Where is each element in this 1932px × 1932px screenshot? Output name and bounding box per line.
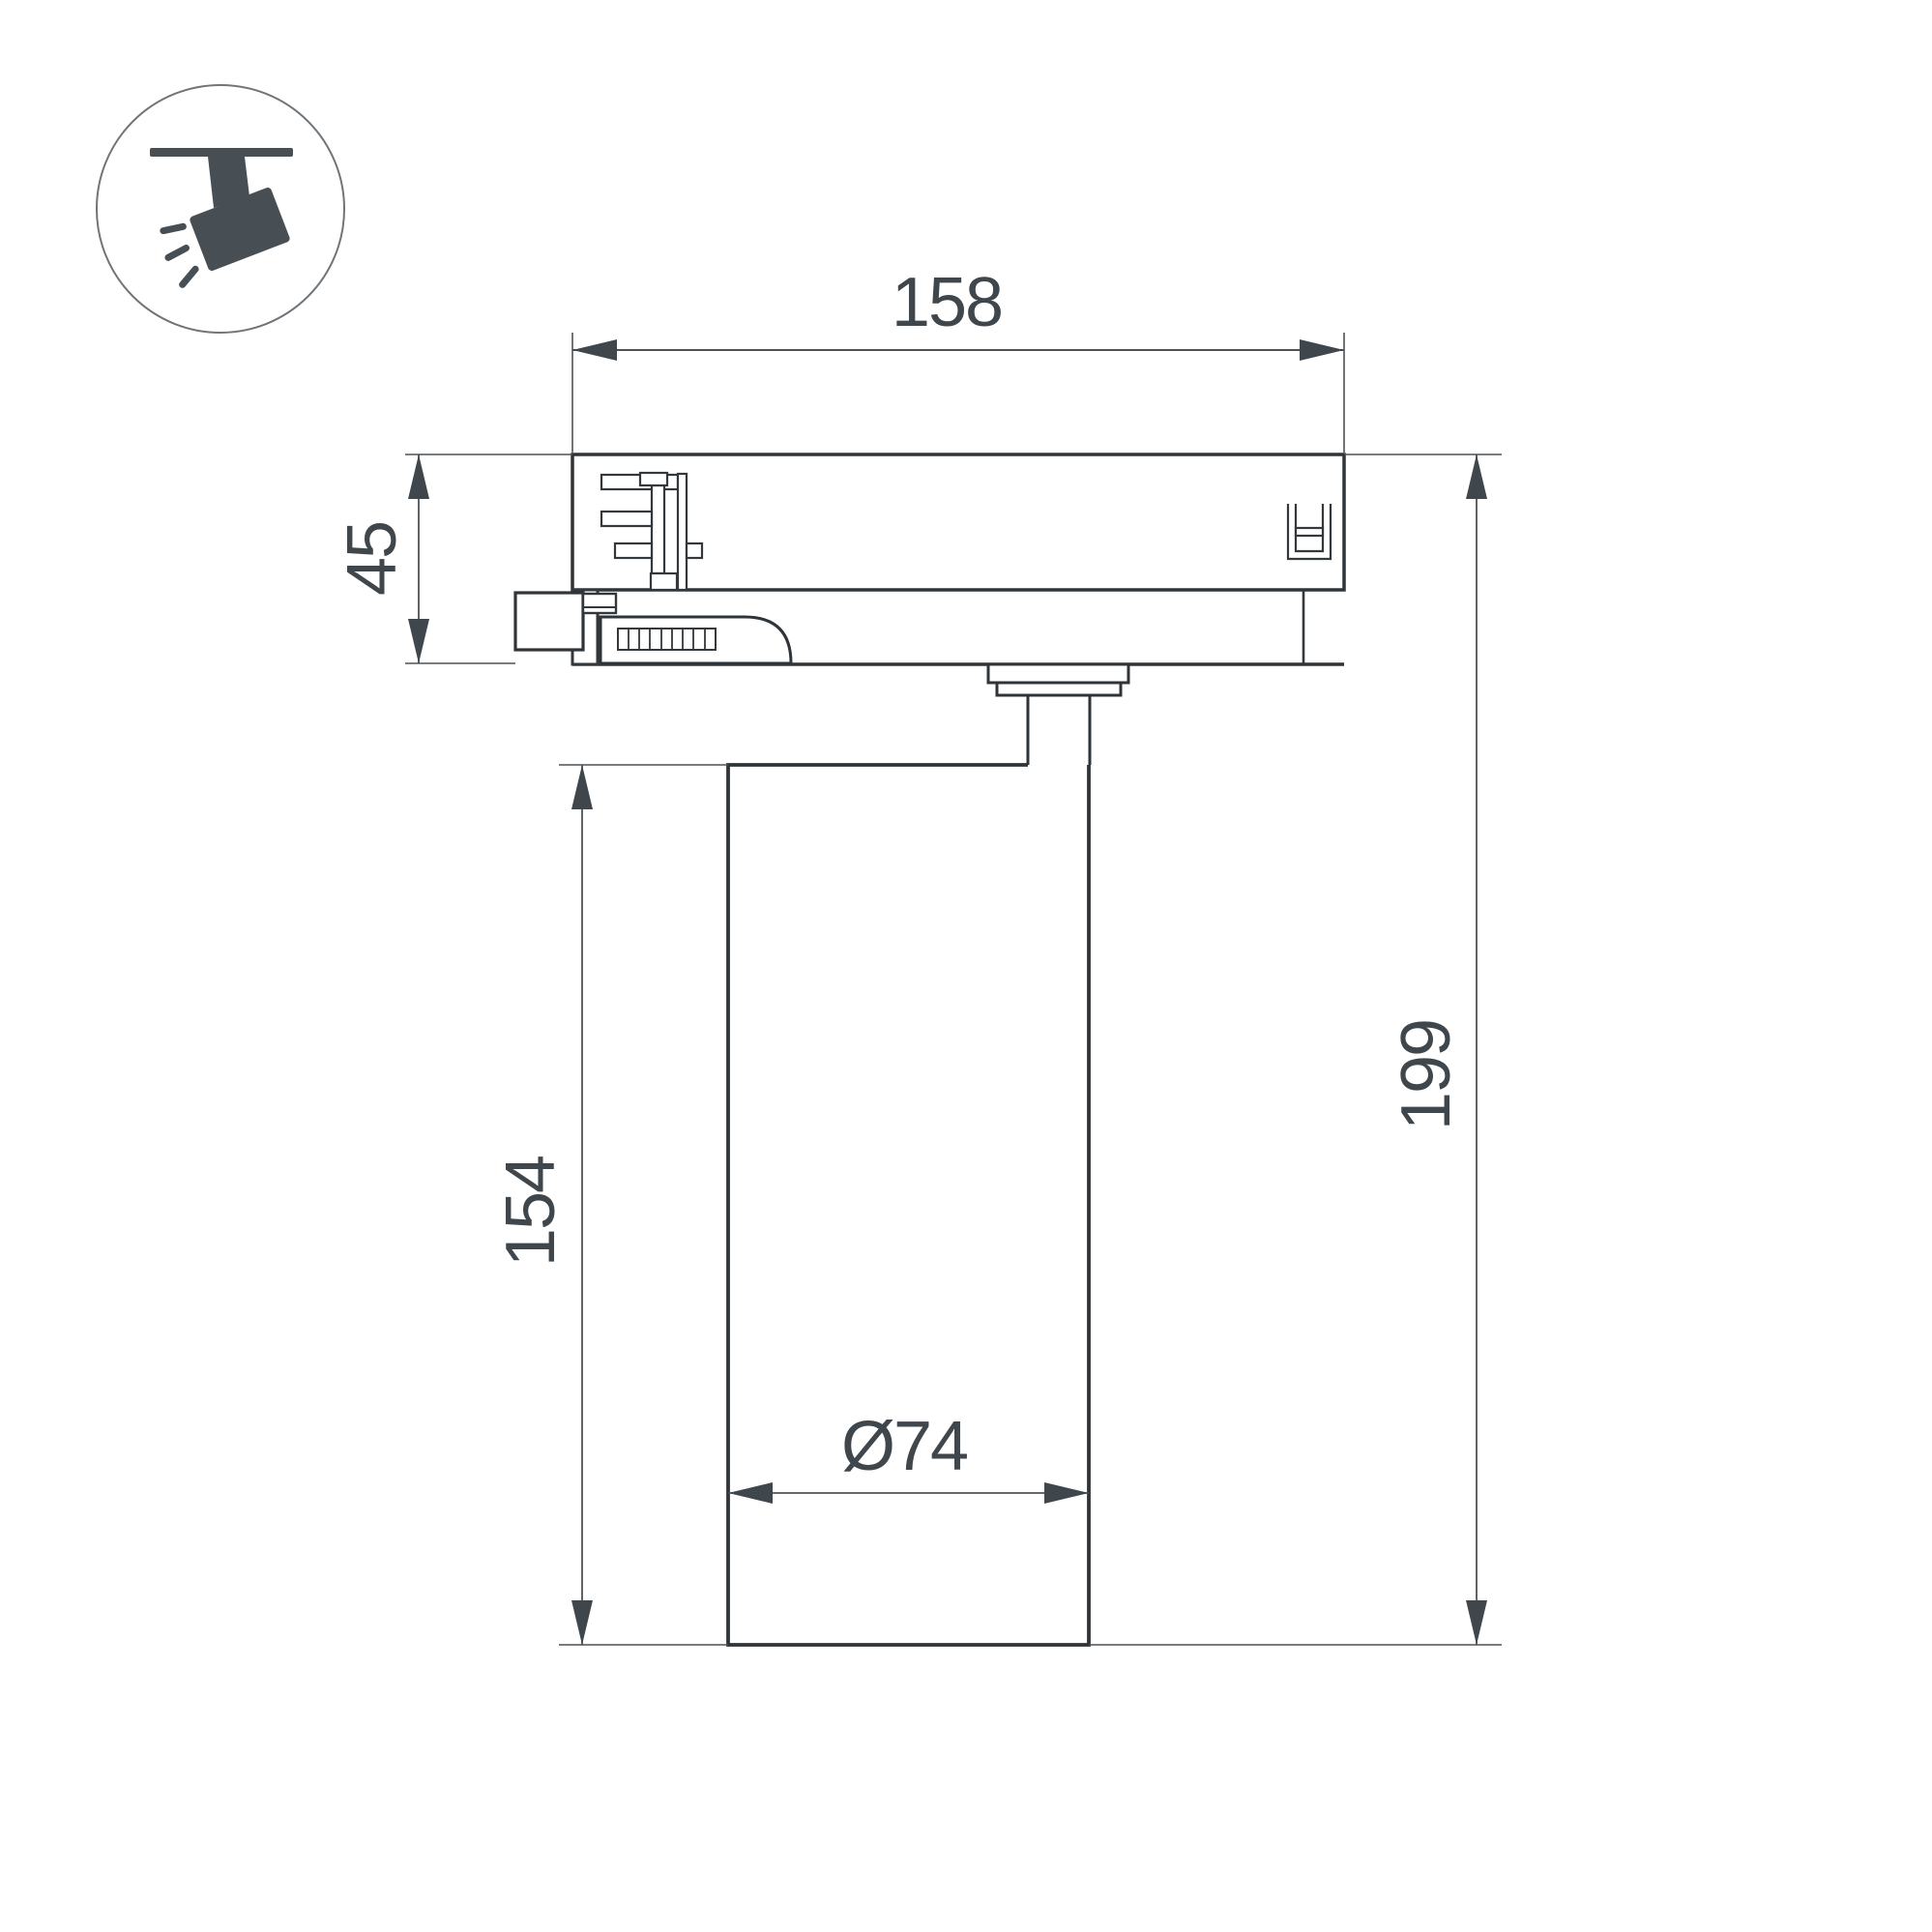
dim-body-height-154: 154 xyxy=(492,765,728,1645)
contact-mast xyxy=(652,485,664,573)
arrowhead-down xyxy=(408,619,429,663)
cylinder-fill xyxy=(728,765,1089,1645)
contact-prong-bottom xyxy=(615,543,652,558)
contact-foot xyxy=(651,573,677,590)
contact-wall xyxy=(678,474,687,590)
dimension-drawing-page: 158 45 154 199 Ø74 xyxy=(0,0,1932,1932)
dimension-drawing-canvas: 158 45 154 199 Ø74 xyxy=(0,0,1932,1932)
arrowhead-left xyxy=(572,339,617,361)
latch-box xyxy=(515,593,583,650)
contact-prong-middle xyxy=(601,512,652,526)
flange-step-2 xyxy=(997,683,1121,695)
contact-tab xyxy=(687,543,702,558)
latch-window xyxy=(583,594,616,613)
arrowhead-down xyxy=(571,1600,593,1645)
clip-rung xyxy=(1296,528,1323,536)
icon-ceiling-bar xyxy=(150,148,293,157)
dim-width-158: 158 xyxy=(572,264,1344,453)
dim-total-height-199: 199 xyxy=(1089,454,1502,1645)
arrowhead-up xyxy=(408,454,429,499)
track-spotlight-icon xyxy=(97,85,344,333)
adapter-body xyxy=(572,454,1344,590)
ratchet-strip xyxy=(618,629,716,650)
dimension-label: 199 xyxy=(1388,1020,1465,1130)
flange-step-1 xyxy=(988,664,1128,683)
arrowhead-up xyxy=(1466,454,1487,499)
dimension-label: Ø74 xyxy=(841,1408,967,1485)
arrowhead-up xyxy=(571,765,593,809)
arrowhead-down xyxy=(1466,1600,1487,1645)
dimension-label: 45 xyxy=(334,522,411,596)
dimension-label: 154 xyxy=(492,1156,570,1267)
arrowhead-right xyxy=(1300,339,1344,361)
contact-mast-cap xyxy=(640,473,667,485)
dimension-label: 158 xyxy=(892,264,1002,341)
